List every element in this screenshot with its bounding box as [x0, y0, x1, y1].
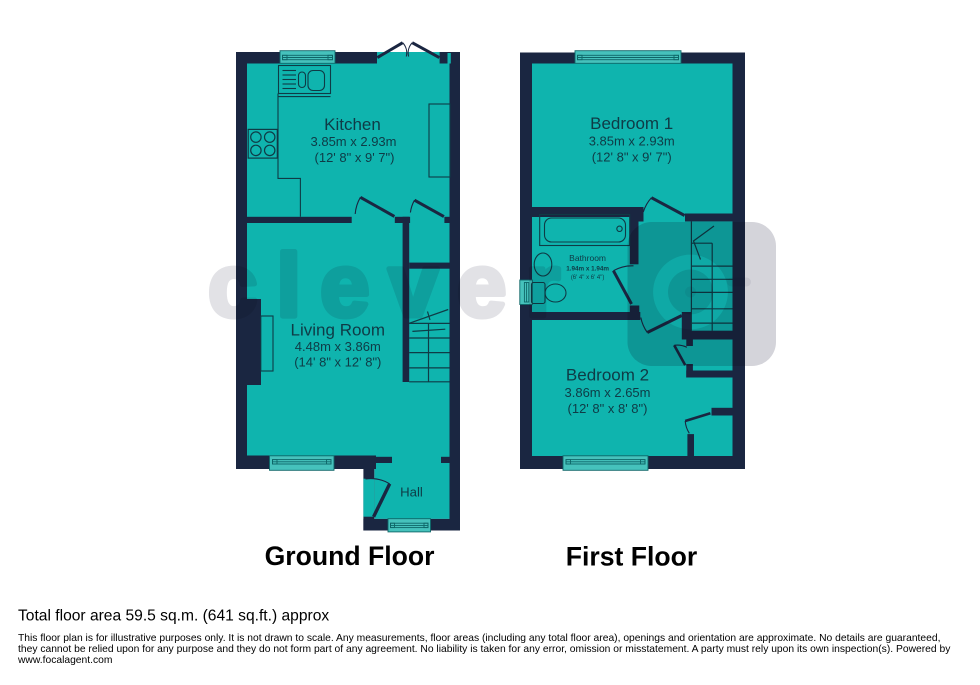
svg-text:they cannot be relied upon for: they cannot be relied upon for any purpo… [18, 644, 951, 655]
svg-text:www.focalagent.com: www.focalagent.com [17, 655, 112, 666]
svg-text:Kitchen: Kitchen [324, 115, 381, 134]
svg-text:Living Room: Living Room [291, 321, 386, 340]
svg-text:Total floor area 59.5 sq.m. (6: Total floor area 59.5 sq.m. (641 sq.ft.)… [18, 608, 329, 625]
svg-text:Bathroom: Bathroom [569, 253, 606, 263]
svg-text:Ground Floor: Ground Floor [265, 541, 435, 571]
svg-text:This floor plan is for illustr: This floor plan is for illustrative purp… [18, 633, 940, 644]
svg-text:3.85m x 2.93m: 3.85m x 2.93m [589, 134, 675, 149]
svg-text:(6' 4" x 6' 4"): (6' 4" x 6' 4") [571, 275, 605, 281]
svg-text:3.85m x 2.93m: 3.85m x 2.93m [311, 134, 397, 149]
svg-text:First Floor: First Floor [566, 542, 698, 572]
svg-text:Bedroom 1: Bedroom 1 [590, 114, 673, 133]
svg-text:(12' 8" x 8' 8"): (12' 8" x 8' 8") [568, 401, 648, 416]
svg-text:3.86m x 2.65m: 3.86m x 2.65m [565, 385, 651, 400]
svg-text:(12' 8" x 9' 7"): (12' 8" x 9' 7") [592, 150, 672, 165]
svg-text:1.94m x 1.94m: 1.94m x 1.94m [566, 266, 609, 273]
svg-text:4.48m x 3.86m: 4.48m x 3.86m [295, 339, 381, 354]
svg-text:(14' 8" x 12' 8"): (14' 8" x 12' 8") [294, 355, 381, 370]
svg-text:(12' 8" x 9' 7"): (12' 8" x 9' 7") [315, 150, 395, 165]
svg-text:Hall: Hall [400, 485, 423, 500]
svg-text:Bedroom 2: Bedroom 2 [566, 366, 649, 385]
